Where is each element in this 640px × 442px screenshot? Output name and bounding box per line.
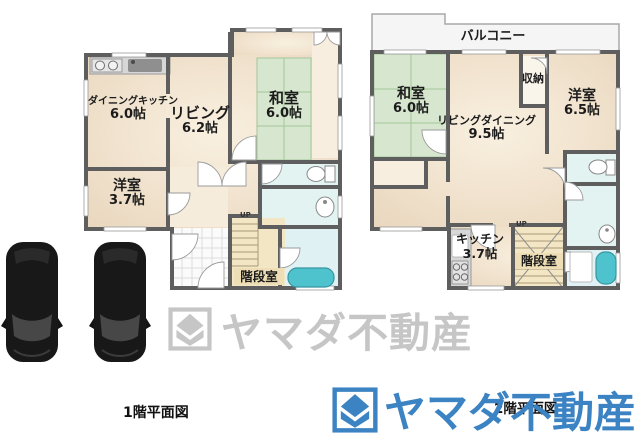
- floorplan-drawing: [0, 0, 640, 442]
- washer-pan-icon: [570, 252, 592, 282]
- car-icon: [1, 242, 63, 362]
- watermark-text: ヤマダ不動産: [221, 299, 473, 359]
- room-label-living-dining: リビングダイニング 9.5帖: [434, 115, 539, 143]
- yamada-logo-icon: [332, 387, 378, 433]
- room-label-living: リビング 6.2帖: [170, 105, 230, 137]
- watermark: ヤマダ不動産: [168, 299, 473, 359]
- brand-logo: ヤマダ不動産: [332, 379, 636, 440]
- closet-floor-2f: [374, 159, 424, 185]
- storage-label: 収納: [517, 73, 549, 86]
- stair-room-label-2f: 階段室: [515, 253, 563, 269]
- brand-text: ヤマダ不動産: [384, 379, 636, 440]
- room-label-washitsu-2f: 和室 6.0帖: [376, 86, 446, 117]
- floorplan-page: ダイニングキッチン 6.0帖 リビング 6.2帖 和室 6.0帖 洋室 3.7帖…: [0, 0, 640, 442]
- room-label-dining-kitchen: ダイニングキッチン 6.0帖: [88, 96, 168, 122]
- up-label-2f: UP: [516, 220, 527, 228]
- up-label-1f: UP: [240, 211, 251, 219]
- kitchen-counter-1f: [90, 57, 170, 74]
- bathtub-icon-2f: [596, 252, 616, 284]
- toilet-icon-2f: [589, 160, 615, 175]
- room-label-washitsu-1f: 和室 6.0帖: [250, 90, 318, 122]
- floor1-caption: 1階平面図: [123, 402, 189, 422]
- car-icon: [89, 242, 151, 362]
- toilet-icon-1f: [307, 166, 335, 182]
- room-label-youshitsu-2f: 洋室 6.5帖: [550, 88, 614, 119]
- room-label-kitchen-2f: キッチン 3.7帖: [450, 233, 510, 261]
- balcony-label: バルコニー: [448, 30, 538, 45]
- yamada-logo-icon: [168, 307, 212, 351]
- washbasin-icon-2f: [599, 225, 615, 243]
- room-label-youshitsu-1f: 洋室 3.7帖: [92, 178, 162, 209]
- stair-room-label-1f: 階段室: [234, 268, 284, 285]
- bathtub-icon-1f: [288, 268, 334, 287]
- washbasin-icon-1f: [316, 197, 334, 217]
